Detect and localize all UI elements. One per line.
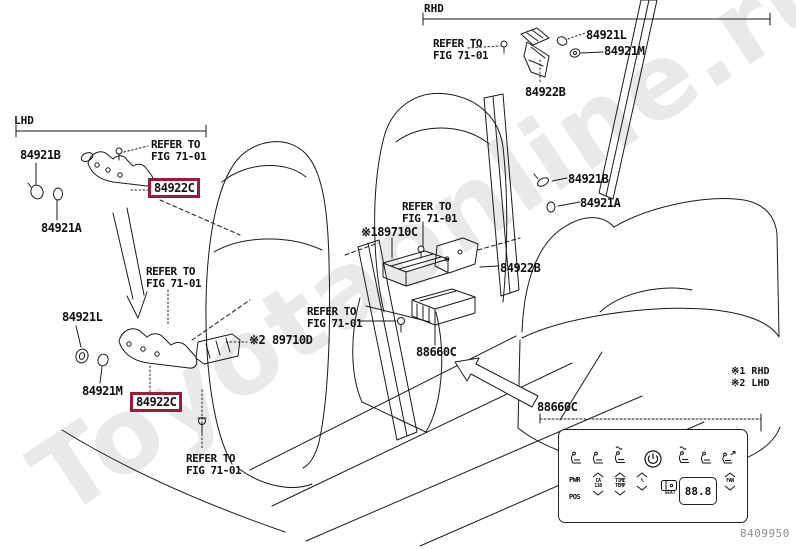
refer-note-2: REFER TOFIG 71-01 [151, 139, 206, 163]
section-label-lhd: LHD [14, 114, 34, 127]
adjust-column-1: CA110 [588, 472, 608, 496]
parts-diagram-page: Toyotaonline.ru [0, 0, 796, 549]
down-chevron-icon [636, 485, 648, 491]
part-label-84922B-top[interactable]: 84922B [525, 85, 565, 99]
part-label-84922C-mid[interactable]: 84922C [130, 392, 182, 412]
seat-person-icon [699, 451, 713, 465]
part-label-84921L-top[interactable]: 84921L [586, 28, 626, 42]
seat-map-icon [661, 480, 677, 491]
refer-note-5: REFER TOFIG 71-01 [307, 306, 362, 330]
part-label-88660C-center[interactable]: 88660C [416, 345, 456, 359]
part-label-88660C-panel[interactable]: 88660C [537, 400, 577, 414]
seat-select-button: SEAT [661, 480, 679, 496]
seat-heat-icon [677, 445, 691, 465]
down-chevron-icon [724, 485, 736, 491]
power-icon [643, 449, 663, 469]
part-label-84921B-right[interactable]: 84921B [568, 172, 608, 186]
part-label-84921M-mid[interactable]: 84921M [82, 384, 122, 398]
temperature-display: 88.8 [679, 477, 717, 505]
part-label-84921L-mid[interactable]: 84921L [62, 310, 102, 324]
part-label-84922C-left[interactable]: 84922C [148, 178, 200, 198]
refer-note-4: REFER TOFIG 71-01 [186, 453, 241, 477]
seat-control-panel: PWR POS CA110 TIMETEMP % SEAT 88.8 [558, 429, 748, 523]
refer-note-3: REFER TOFIG 71-01 [146, 266, 201, 290]
section-label-rhd: RHD [424, 2, 444, 15]
part-label-89710C[interactable]: ※189710C [361, 225, 418, 239]
seat-adjust-icon [721, 451, 736, 465]
seat-heat-icon [613, 445, 627, 465]
refer-note-1: REFER TOFIG 71-01 [433, 38, 488, 62]
pwr-button-label: PWR [569, 476, 580, 484]
footnote-rhd: ※1 RHD [731, 366, 769, 378]
part-label-84921A-right[interactable]: 84921A [580, 196, 620, 210]
part-label-84921A-left[interactable]: 84921A [41, 221, 81, 235]
adjust-column-3: % [632, 472, 652, 491]
part-label-84921M-top[interactable]: 84921M [604, 44, 644, 58]
down-chevron-icon [614, 490, 626, 496]
fan-column: FAN [720, 472, 740, 491]
part-label-84922B-mid[interactable]: 84922B [500, 261, 540, 275]
refer-note-6: REFER TOFIG 71-01 [402, 201, 457, 225]
pos-button-label: POS [569, 493, 580, 501]
diagram-code: 8409950 [740, 527, 790, 540]
part-label-89710D[interactable]: ※2 89710D [249, 333, 312, 347]
down-chevron-icon [592, 490, 604, 496]
footnote-lhd: ※2 LHD [731, 378, 769, 390]
part-label-84921B-left[interactable]: 84921B [20, 148, 60, 162]
seat-person-icon [569, 451, 583, 465]
seat-person-icon [591, 451, 605, 465]
adjust-column-2: TIMETEMP [610, 472, 630, 496]
